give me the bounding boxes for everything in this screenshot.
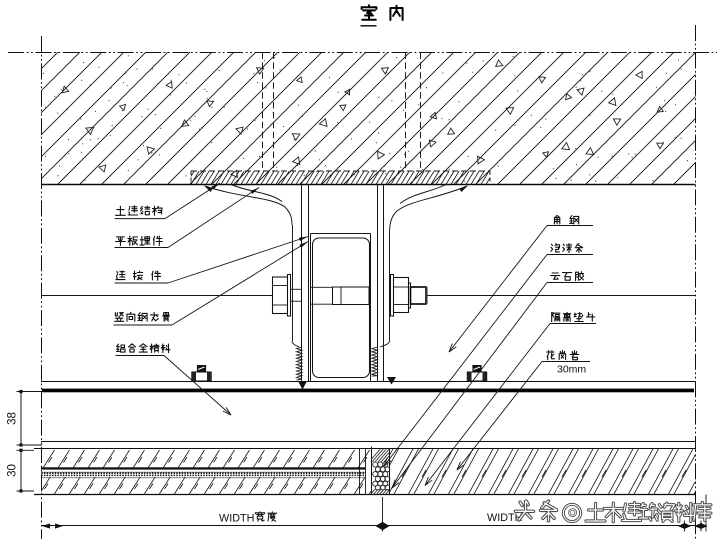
svg-text:38: 38 [7,412,19,425]
svg-text:30mm: 30mm [557,364,586,376]
svg-text:30: 30 [7,464,19,477]
svg-text:WIDTH: WIDTH [219,513,254,525]
svg-text:WIDTH: WIDTH [487,512,522,524]
